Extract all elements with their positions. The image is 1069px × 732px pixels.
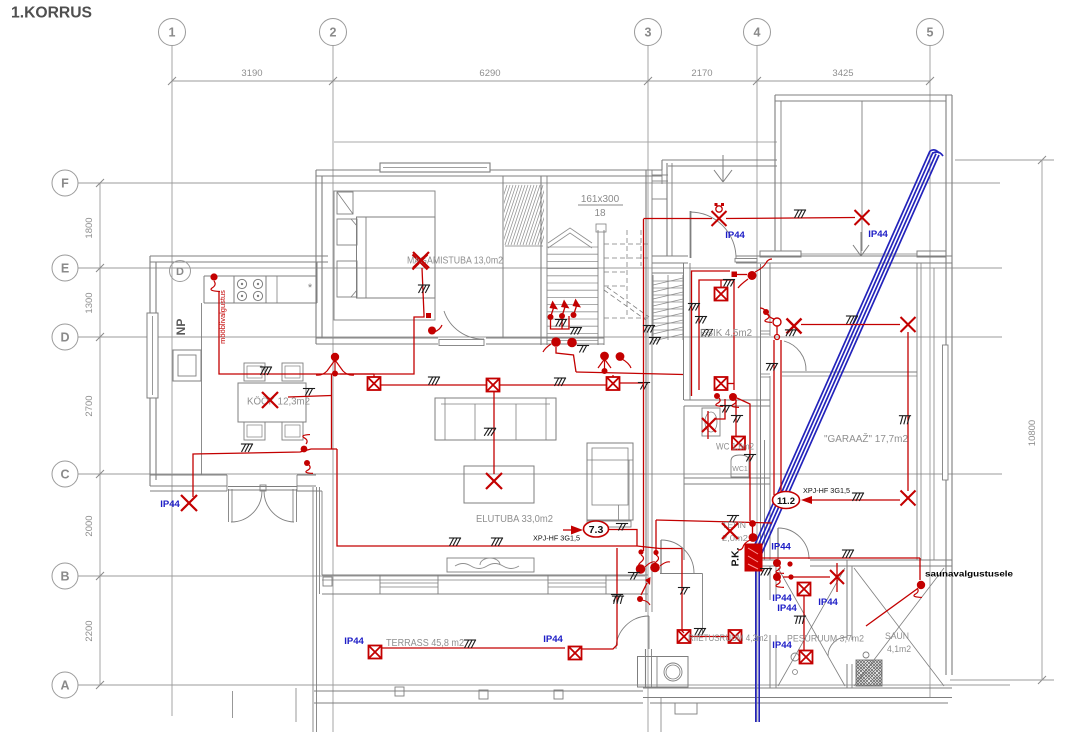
svg-text:2000: 2000 — [84, 515, 95, 536]
svg-text:XPJ-HF 3G1,5: XPJ-HF 3G1,5 — [533, 534, 580, 543]
svg-text:P.K.: P.K. — [730, 547, 742, 566]
svg-text:D: D — [176, 266, 184, 278]
svg-text:saunavalgustusele: saunavalgustusele — [925, 570, 1014, 579]
svg-text:RIIETUSRUUM 4,2m2: RIIETUSRUUM 4,2m2 — [688, 633, 768, 643]
svg-text:IP44: IP44 — [344, 636, 364, 647]
svg-text:IP44: IP44 — [771, 542, 791, 553]
svg-text:10800: 10800 — [1027, 420, 1038, 446]
svg-text:WC 1,6m2: WC 1,6m2 — [716, 442, 754, 452]
svg-text:IP44: IP44 — [818, 597, 838, 608]
svg-text:"GARAAŽ" 17,7m2: "GARAAŽ" 17,7m2 — [824, 432, 908, 445]
svg-text:2200: 2200 — [84, 620, 95, 641]
svg-text:F: F — [61, 177, 69, 191]
svg-text:XPJ-HF 3G1,5: XPJ-HF 3G1,5 — [803, 486, 850, 495]
svg-text:WC1: WC1 — [732, 466, 748, 473]
svg-text:KÖÖK 12,3m2: KÖÖK 12,3m2 — [247, 396, 310, 408]
svg-text:C: C — [60, 468, 69, 482]
svg-text:1800: 1800 — [84, 217, 95, 238]
svg-text:*: * — [308, 282, 313, 294]
svg-text:NP: NP — [174, 319, 188, 336]
svg-text:3425: 3425 — [832, 68, 853, 79]
svg-text:E: E — [61, 262, 69, 276]
svg-text:IP44: IP44 — [777, 603, 797, 614]
svg-text:11.2: 11.2 — [777, 496, 795, 507]
svg-text:A: A — [60, 679, 69, 693]
svg-text:IP44: IP44 — [725, 230, 745, 241]
svg-text:IP44: IP44 — [543, 634, 563, 645]
svg-text:18: 18 — [594, 208, 606, 219]
svg-text:3: 3 — [645, 26, 652, 40]
svg-text:2: 2 — [330, 26, 337, 40]
svg-text:1.KORRUS: 1.KORRUS — [11, 5, 92, 22]
svg-text:ELUTUBA 33,0m2: ELUTUBA 33,0m2 — [476, 514, 553, 525]
svg-text:PESURUUM 3,7m2: PESURUUM 3,7m2 — [787, 634, 864, 645]
svg-text:7.3: 7.3 — [589, 524, 604, 536]
svg-text:5: 5 — [927, 26, 934, 40]
svg-text:161x300: 161x300 — [581, 194, 620, 205]
svg-text:IP44: IP44 — [160, 499, 180, 510]
svg-text:3190: 3190 — [241, 68, 262, 79]
svg-text:TERRASS 45,8 m2: TERRASS 45,8 m2 — [386, 638, 464, 649]
svg-text:4,1m2: 4,1m2 — [887, 644, 911, 655]
svg-text:2700: 2700 — [84, 395, 95, 416]
svg-text:1300: 1300 — [84, 292, 95, 313]
svg-text:D: D — [60, 331, 69, 345]
svg-text:6290: 6290 — [479, 68, 500, 79]
svg-text:4: 4 — [754, 26, 761, 40]
svg-text:1: 1 — [169, 26, 176, 40]
svg-text:mööblivalgustus: mööblivalgustus — [218, 290, 227, 344]
svg-text:IP44: IP44 — [868, 229, 888, 240]
svg-text:B: B — [60, 570, 69, 584]
svg-text:2170: 2170 — [691, 68, 712, 79]
svg-text:ESIK 4,5m2: ESIK 4,5m2 — [700, 328, 752, 339]
svg-text:SAUN: SAUN — [885, 631, 909, 642]
